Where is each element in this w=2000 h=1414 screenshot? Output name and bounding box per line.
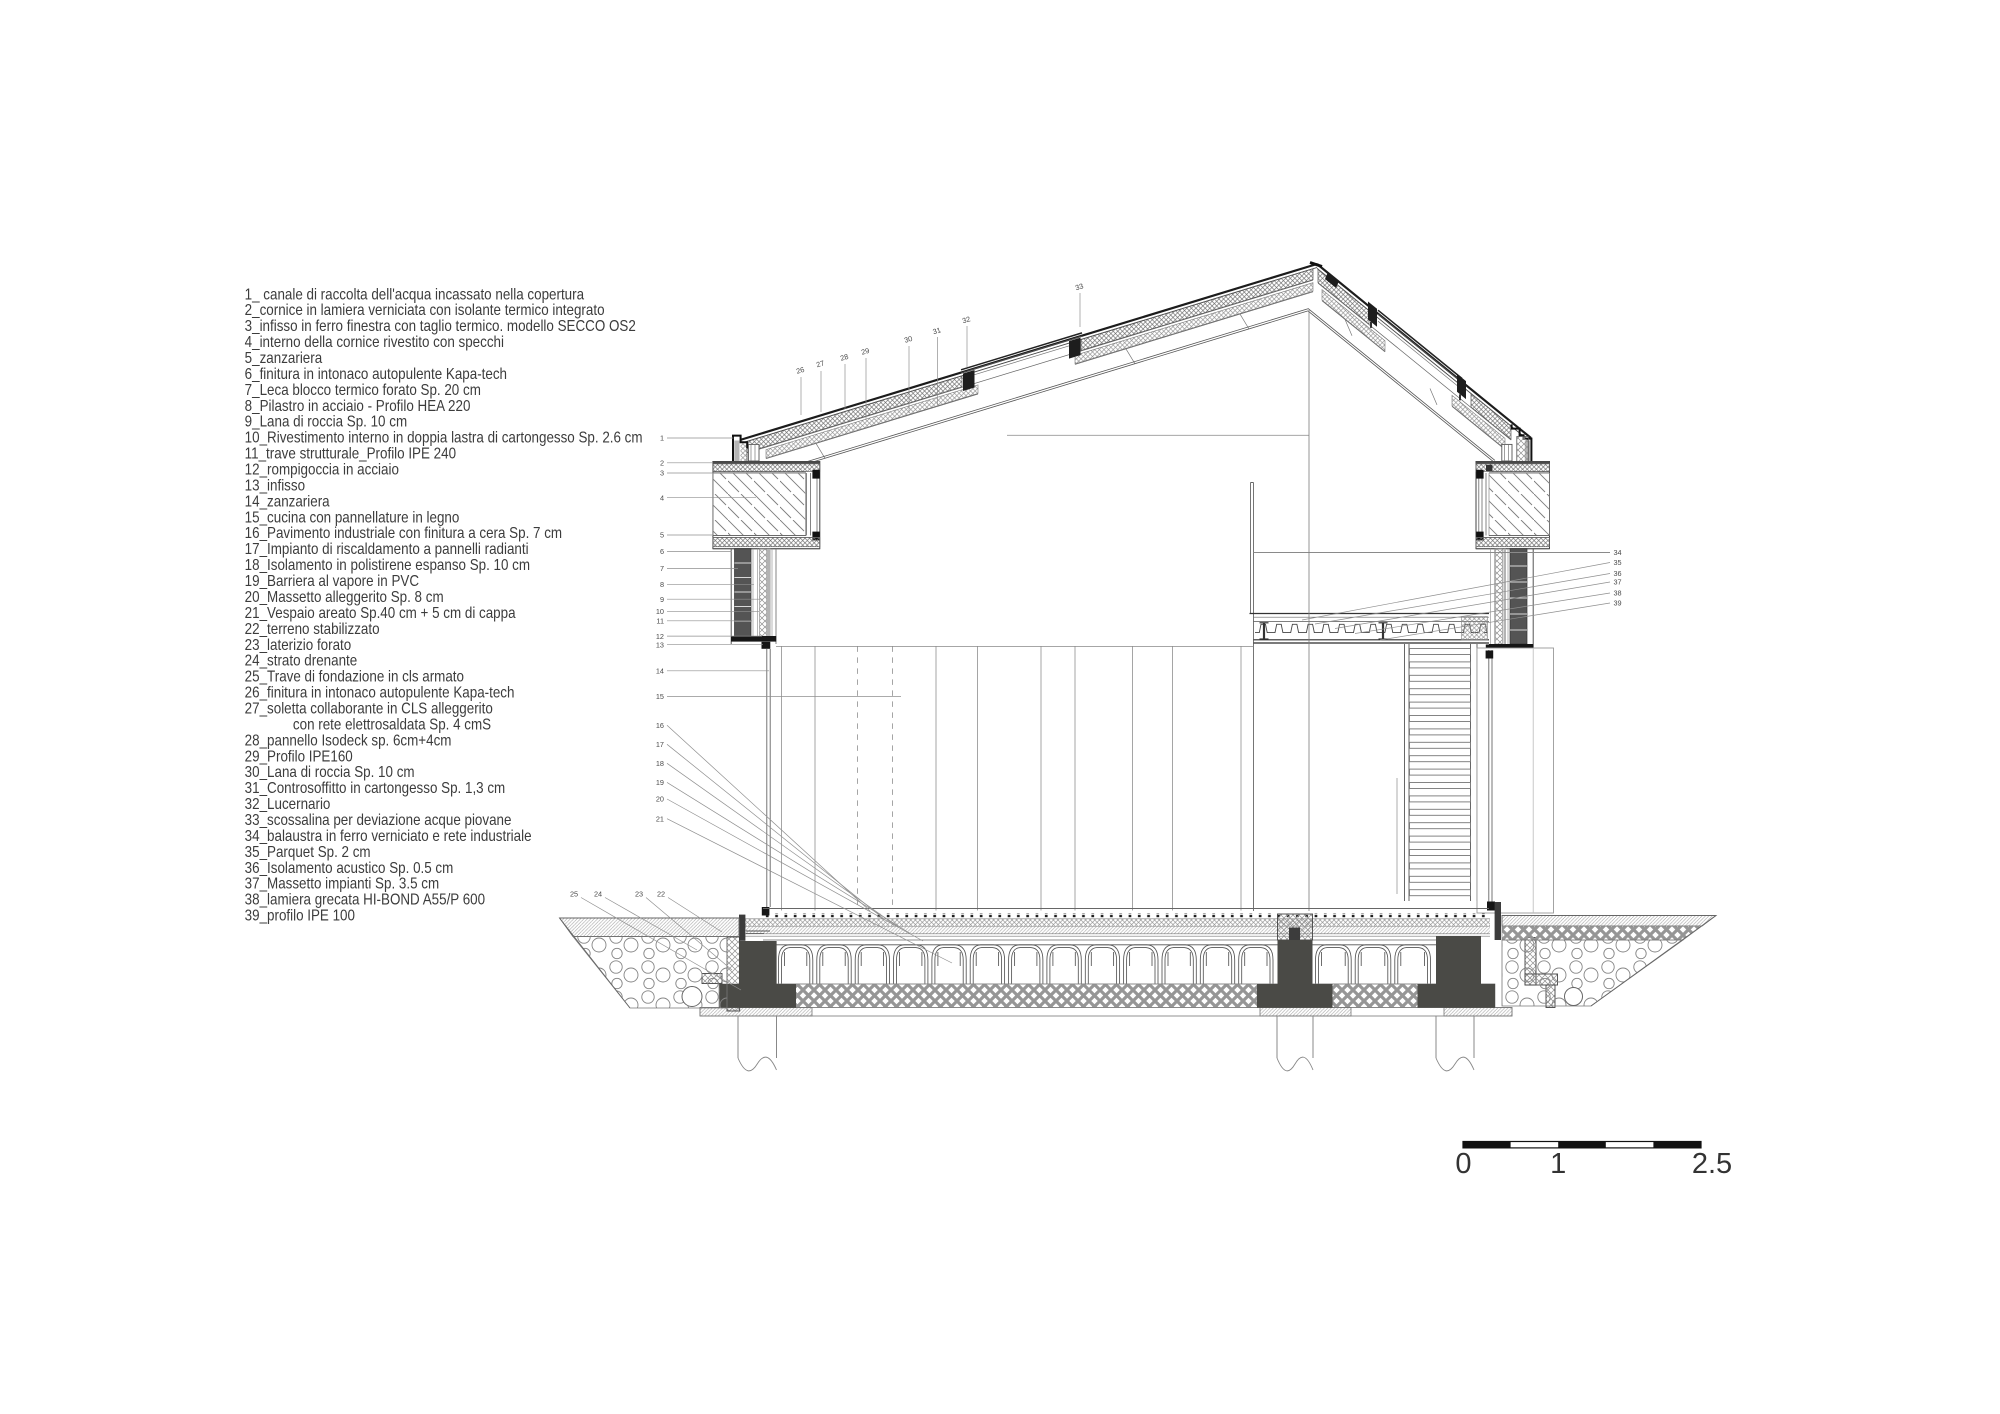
svg-text:2_cornice in lamiera verniciat: 2_cornice in lamiera verniciata con isol… [245, 302, 605, 319]
svg-text:1_ canale di raccolta dell'acq: 1_ canale di raccolta dell'acqua incassa… [245, 287, 584, 304]
svg-text:21: 21 [656, 814, 664, 823]
svg-text:29_Profilo IPE160: 29_Profilo IPE160 [245, 749, 353, 766]
svg-text:34_balaustra in ferro vernici: 34_balaustra in ferro verniciato e rete … [245, 828, 532, 845]
svg-text:4_interno della cornice rivest: 4_interno della cornice rivestito con sp… [245, 334, 504, 351]
svg-text:11: 11 [656, 617, 664, 626]
svg-text:19_Barriera al vapore in PVC: 19_Barriera al vapore in PVC [245, 573, 419, 590]
svg-text:13_infisso: 13_infisso [245, 478, 305, 495]
svg-text:20: 20 [656, 795, 664, 804]
svg-text:17: 17 [656, 740, 664, 749]
svg-text:22: 22 [657, 890, 665, 899]
svg-text:38_lamiera grecata HI-BOND A55: 38_lamiera grecata HI-BOND A55/P 600 [245, 892, 485, 909]
svg-text:28_pannello Isodeck sp. 6cm+4c: 28_pannello Isodeck sp. 6cm+4cm [245, 733, 452, 750]
svg-text:con rete elettrosaldata Sp. 4: con rete elettrosaldata Sp. 4 cmS [293, 717, 491, 734]
svg-text:6_finitura in intonaco autopul: 6_finitura in intonaco autopulente Kapa-… [245, 366, 507, 383]
svg-text:38: 38 [1614, 589, 1622, 598]
svg-text:12_rompigoccia in acciaio: 12_rompigoccia in acciaio [245, 462, 399, 479]
svg-text:35_Parquet Sp. 2 cm: 35_Parquet Sp. 2 cm [245, 844, 371, 861]
svg-text:25: 25 [570, 890, 578, 899]
svg-text:1: 1 [660, 434, 664, 443]
svg-text:17_Impianto di riscaldamento a: 17_Impianto di riscaldamento a pannelli … [245, 541, 529, 558]
svg-text:27_soletta collaborante in CL: 27_soletta collaborante in CLS alleggeri… [245, 701, 493, 718]
svg-text:30_Lana di roccia Sp. 10 cm: 30_Lana di roccia Sp. 10 cm [245, 764, 415, 781]
svg-text:36_Isolamento acustico Sp. 0.5: 36_Isolamento acustico Sp. 0.5 cm [245, 860, 454, 877]
svg-text:16: 16 [656, 721, 664, 730]
svg-text:16_Pavimento industriale con f: 16_Pavimento industriale con finitura a … [245, 525, 562, 542]
svg-text:22_terreno stabilizzato: 22_terreno stabilizzato [245, 621, 380, 638]
svg-text:8: 8 [660, 580, 664, 589]
svg-text:24_strato drenante: 24_strato drenante [245, 653, 358, 670]
svg-text:2: 2 [660, 459, 664, 468]
svg-text:15: 15 [656, 692, 664, 701]
svg-text:23_laterizio forato: 23_laterizio forato [245, 637, 352, 654]
svg-text:18: 18 [656, 759, 664, 768]
svg-text:10: 10 [656, 607, 664, 616]
svg-text:7_Leca blocco termico forato S: 7_Leca blocco termico forato Sp. 20 cm [245, 382, 481, 399]
svg-text:19: 19 [656, 778, 664, 787]
svg-text:9_Lana di roccia Sp. 10 cm: 9_Lana di roccia Sp. 10 cm [245, 414, 407, 431]
svg-text:0: 0 [1455, 1148, 1471, 1180]
svg-text:5: 5 [660, 531, 664, 540]
svg-text:35: 35 [1614, 558, 1622, 567]
svg-text:14_zanzariera: 14_zanzariera [245, 494, 330, 511]
svg-text:7: 7 [660, 564, 664, 573]
svg-text:15_cucina con pannellature in: 15_cucina con pannellature in legno [245, 510, 460, 527]
svg-text:3: 3 [660, 469, 664, 478]
svg-text:39_profilo IPE 100: 39_profilo IPE 100 [245, 908, 355, 925]
svg-text:8_Pilastro in acciaio - Profil: 8_Pilastro in acciaio - Profilo HEA 220 [245, 398, 471, 415]
svg-text:20_Massetto alleggerito Sp. 8: 20_Massetto alleggerito Sp. 8 cm [245, 589, 444, 606]
svg-text:26_finitura in intonaco autopu: 26_finitura in intonaco autopulente Kapa… [245, 685, 515, 702]
svg-text:13: 13 [656, 640, 664, 649]
svg-text:2.5: 2.5 [1692, 1148, 1732, 1180]
svg-text:25_Trave di fondazione in cls: 25_Trave di fondazione in cls armato [245, 669, 464, 686]
svg-text:4: 4 [660, 493, 664, 502]
svg-text:31_Controsoffitto in cartonges: 31_Controsoffitto in cartongesso Sp. 1,3… [245, 780, 506, 797]
svg-text:1: 1 [1550, 1148, 1566, 1180]
svg-text:6: 6 [660, 547, 664, 556]
svg-text:37: 37 [1614, 578, 1622, 587]
svg-text:32_Lucernario: 32_Lucernario [245, 796, 331, 813]
svg-text:39: 39 [1614, 599, 1622, 608]
svg-text:9: 9 [660, 595, 664, 604]
svg-text:10_Rivestimento interno in dop: 10_Rivestimento interno in doppia lastra… [245, 430, 643, 447]
svg-text:24: 24 [594, 890, 602, 899]
svg-text:37_Massetto impianti Sp. 3.5 c: 37_Massetto impianti Sp. 3.5 cm [245, 876, 439, 893]
svg-text:21_Vespaio areato Sp.40 cm + 5: 21_Vespaio areato Sp.40 cm + 5 cm di cap… [245, 605, 516, 622]
svg-text:11_trave strutturale_Profilo I: 11_trave strutturale_Profilo IPE 240 [245, 446, 456, 463]
svg-text:5_zanzariera: 5_zanzariera [245, 350, 322, 367]
svg-text:23: 23 [635, 890, 643, 899]
svg-text:3_infisso in ferro finestra co: 3_infisso in ferro finestra con taglio t… [245, 318, 636, 335]
svg-text:14: 14 [656, 667, 664, 676]
svg-text:18_Isolamento in polistirene e: 18_Isolamento in polistirene espanso Sp.… [245, 557, 530, 574]
svg-text:33_scossalina per deviazione a: 33_scossalina per deviazione acque piova… [245, 812, 512, 829]
svg-text:34: 34 [1614, 548, 1622, 557]
